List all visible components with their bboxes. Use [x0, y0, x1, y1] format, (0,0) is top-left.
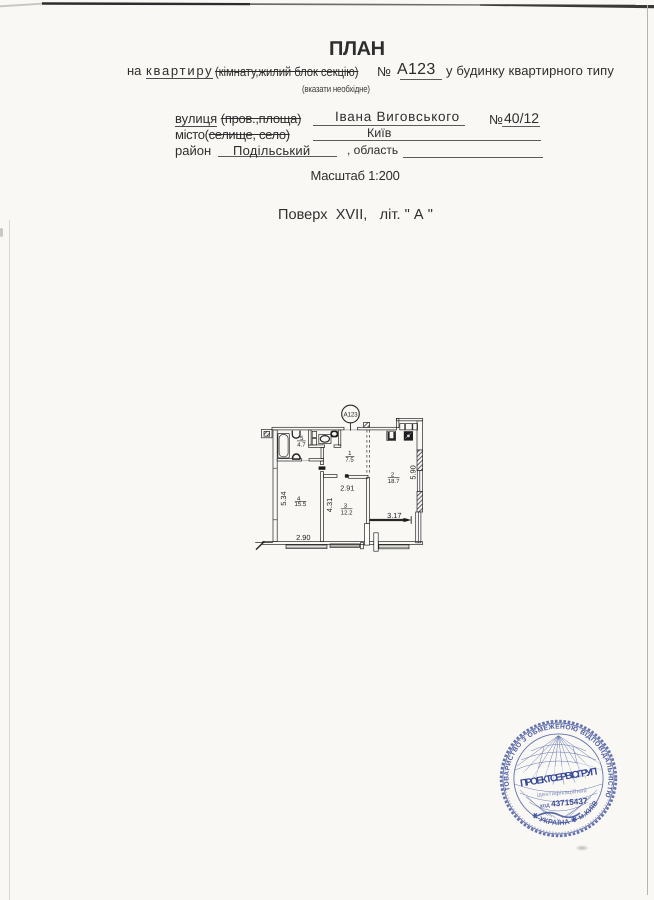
svg-text:18.7: 18.7 — [388, 478, 400, 485]
svg-text:А123: А123 — [344, 411, 359, 418]
svg-text:15.5: 15.5 — [295, 501, 307, 508]
svg-text:4.7: 4.7 — [297, 442, 306, 449]
svg-text:3.17: 3.17 — [387, 511, 401, 520]
svg-text:2.90: 2.90 — [296, 533, 310, 542]
svg-text:2.91: 2.91 — [340, 483, 354, 492]
svg-text:7.5: 7.5 — [345, 457, 354, 464]
svg-text:5.90: 5.90 — [409, 465, 418, 479]
svg-text:4.31: 4.31 — [325, 498, 334, 512]
svg-text:код 43715437: код 43715437 — [540, 796, 589, 809]
svg-text:5.34: 5.34 — [279, 491, 288, 505]
svg-text:12.2: 12.2 — [341, 509, 353, 516]
